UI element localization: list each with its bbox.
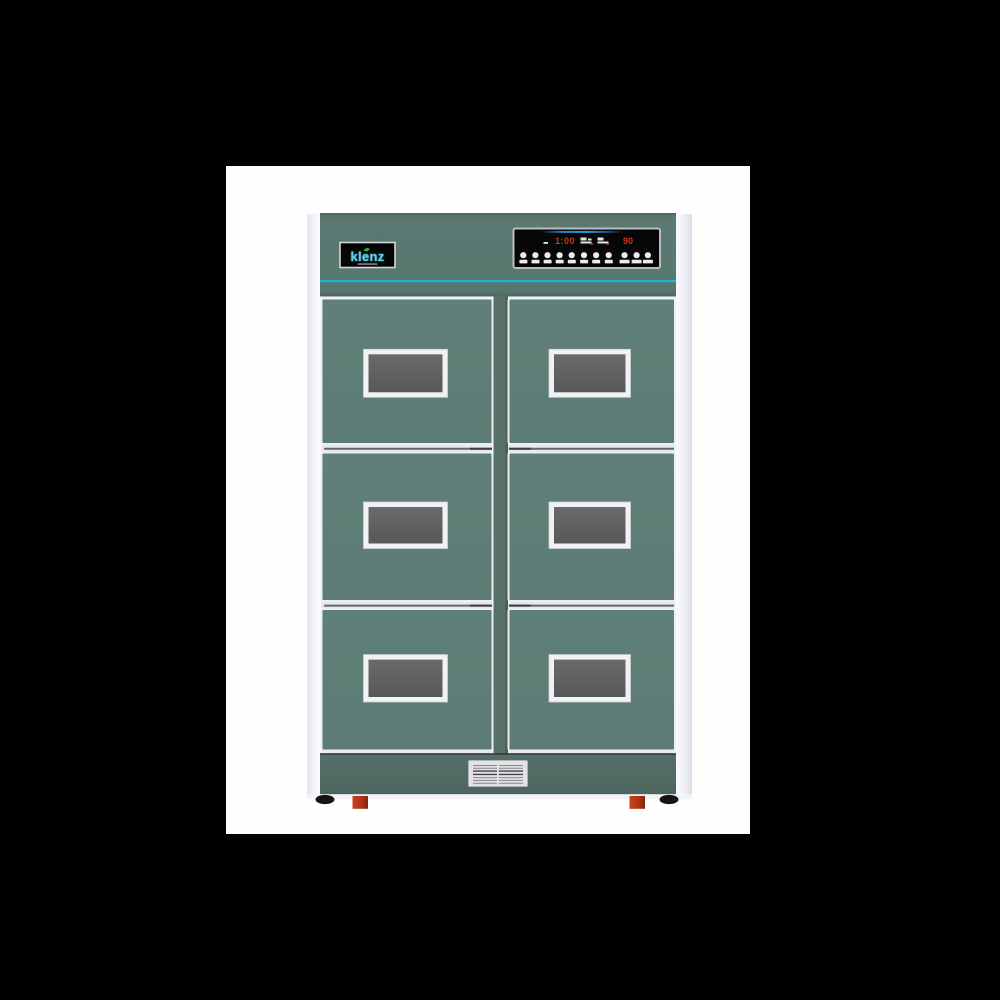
svg-text:klenz: klenz [350,249,384,264]
svg-text:90: 90 [623,236,633,246]
svg-text:1:00: 1:00 [555,236,575,246]
